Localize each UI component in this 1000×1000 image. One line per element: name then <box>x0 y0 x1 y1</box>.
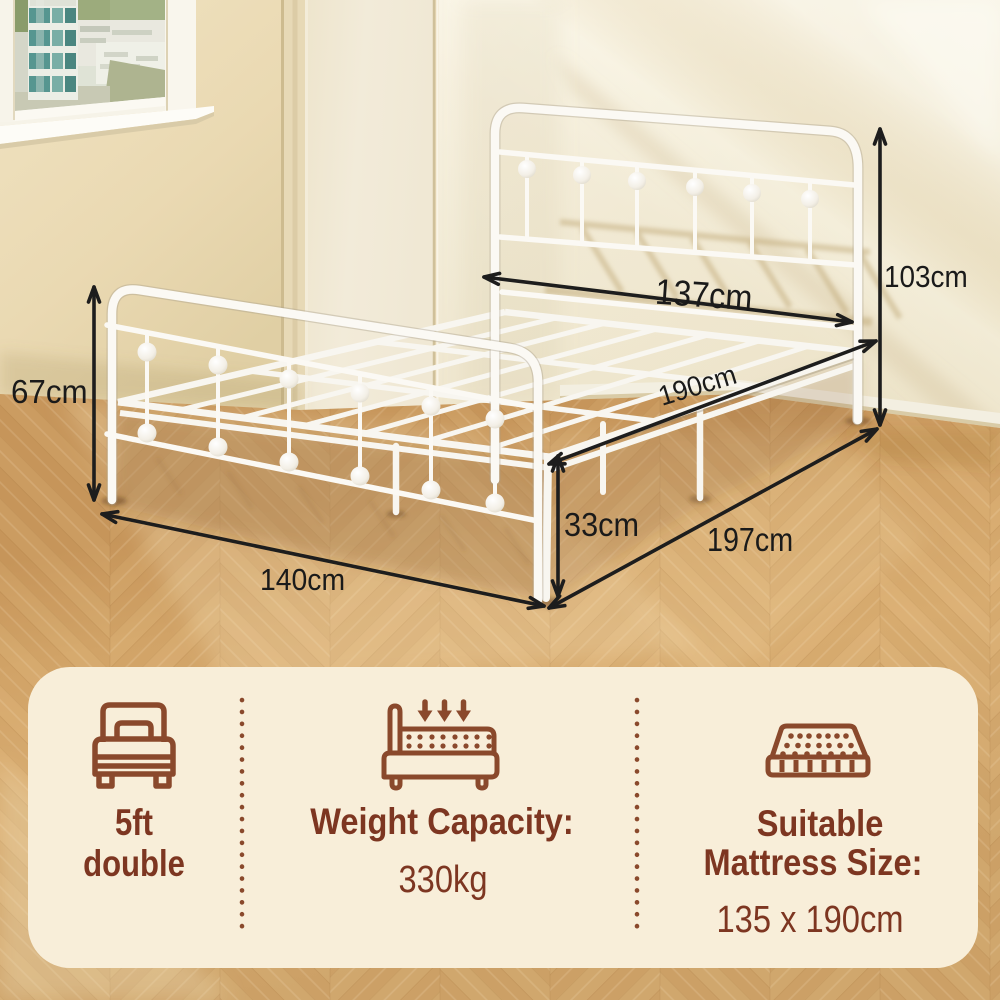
svg-text:5ft: 5ft <box>115 803 153 844</box>
svg-text:67cm: 67cm <box>11 373 88 410</box>
svg-text:103cm: 103cm <box>884 260 968 295</box>
svg-text:33cm: 33cm <box>564 506 639 543</box>
svg-text:Suitable: Suitable <box>757 803 884 844</box>
svg-text:330kg: 330kg <box>399 858 488 901</box>
svg-text:140cm: 140cm <box>260 563 345 597</box>
svg-text:Weight Capacity:: Weight Capacity: <box>310 801 573 842</box>
svg-text:Mattress Size:: Mattress Size: <box>704 842 923 883</box>
svg-text:197cm: 197cm <box>707 521 793 558</box>
svg-text:135 x 190cm: 135 x 190cm <box>716 898 903 941</box>
svg-text:137cm: 137cm <box>654 272 754 319</box>
svg-text:double: double <box>83 844 185 885</box>
